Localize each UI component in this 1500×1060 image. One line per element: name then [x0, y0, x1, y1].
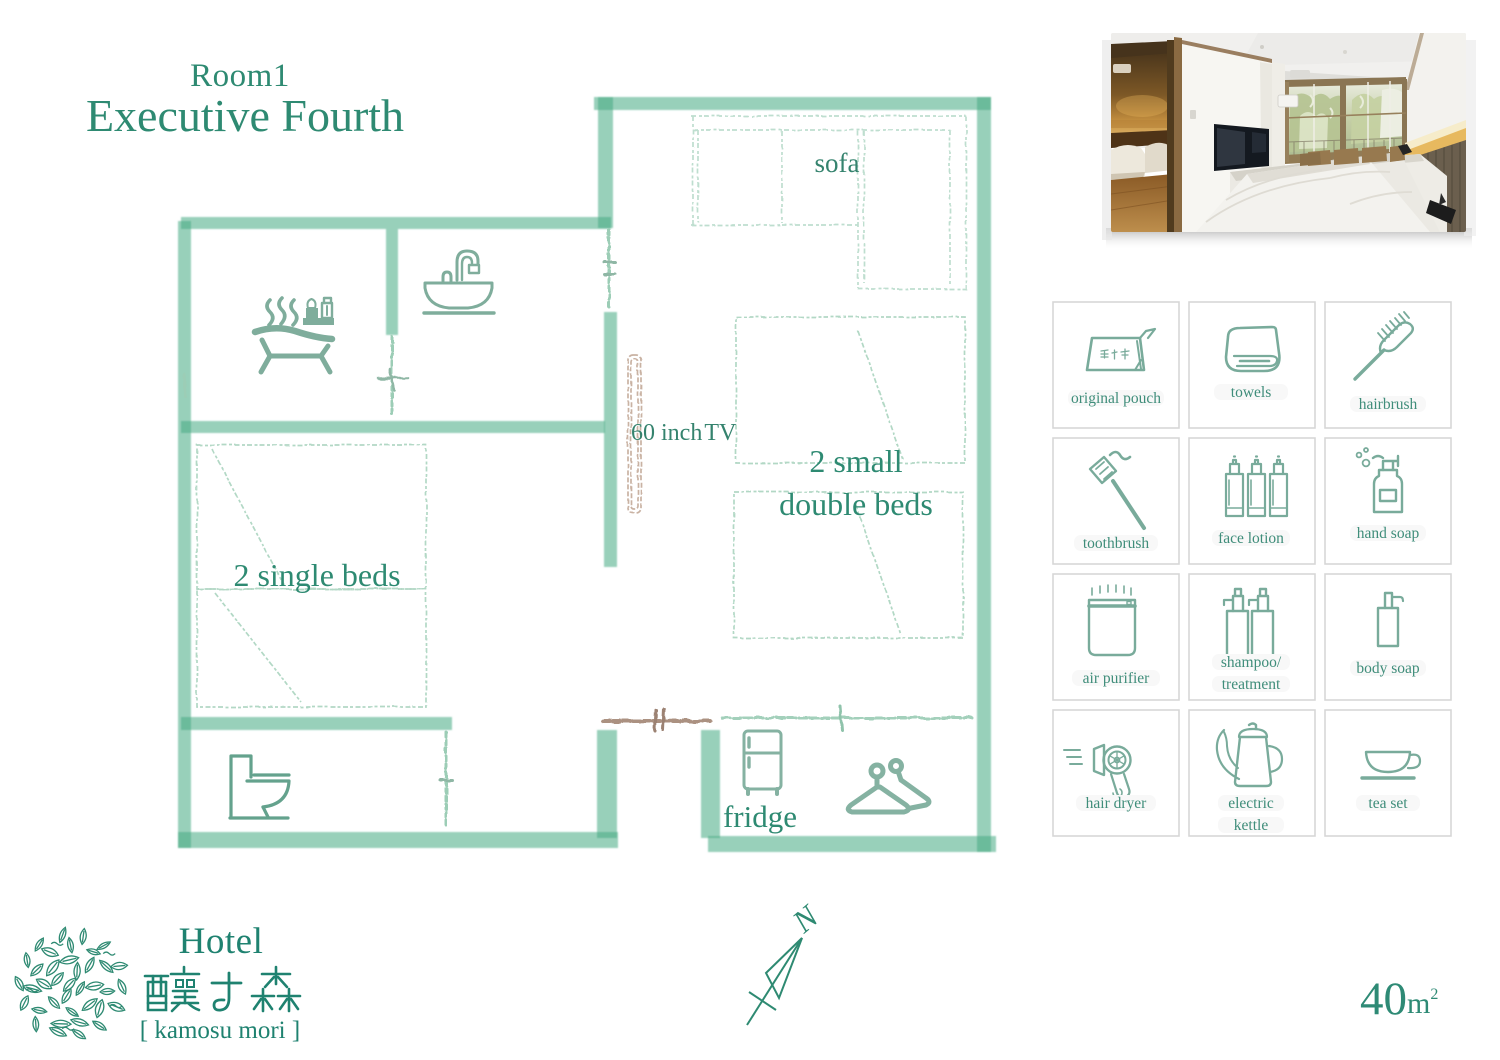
svg-text:body soap: body soap [1356, 660, 1420, 677]
svg-text:original pouch: original pouch [1071, 390, 1161, 407]
svg-text:2 single beds: 2 single beds [233, 557, 400, 593]
svg-text:Room1: Room1 [190, 58, 290, 94]
svg-text:Executive Fourth: Executive Fourth [86, 90, 404, 141]
svg-text:40m2: 40m2 [1360, 973, 1438, 1025]
svg-text:hairbrush: hairbrush [1359, 396, 1418, 413]
svg-text:N: N [785, 897, 827, 940]
svg-text:hair dryer: hair dryer [1086, 795, 1148, 812]
svg-text:face lotion: face lotion [1218, 530, 1284, 547]
svg-text:kettle: kettle [1234, 817, 1269, 834]
svg-text:hand soap: hand soap [1357, 525, 1420, 542]
svg-text:towels: towels [1231, 384, 1271, 401]
svg-text:electric: electric [1228, 795, 1274, 812]
svg-text:[ kamosu mori ]: [ kamosu mori ] [140, 1017, 300, 1044]
svg-text:60 inch TV: 60 inch TV [631, 420, 737, 446]
svg-text:toothbrush: toothbrush [1083, 535, 1150, 552]
svg-text:shampoo/: shampoo/ [1221, 654, 1282, 671]
svg-text:fridge: fridge [723, 799, 797, 834]
svg-text:Hotel: Hotel [179, 921, 264, 962]
svg-text:2 small: 2 small [809, 443, 902, 479]
svg-text:tea set: tea set [1368, 795, 1408, 812]
svg-text:air purifier: air purifier [1083, 670, 1151, 687]
svg-text:double beds: double beds [779, 486, 933, 522]
svg-text:sofa: sofa [815, 148, 860, 178]
svg-text:treatment: treatment [1222, 676, 1281, 693]
